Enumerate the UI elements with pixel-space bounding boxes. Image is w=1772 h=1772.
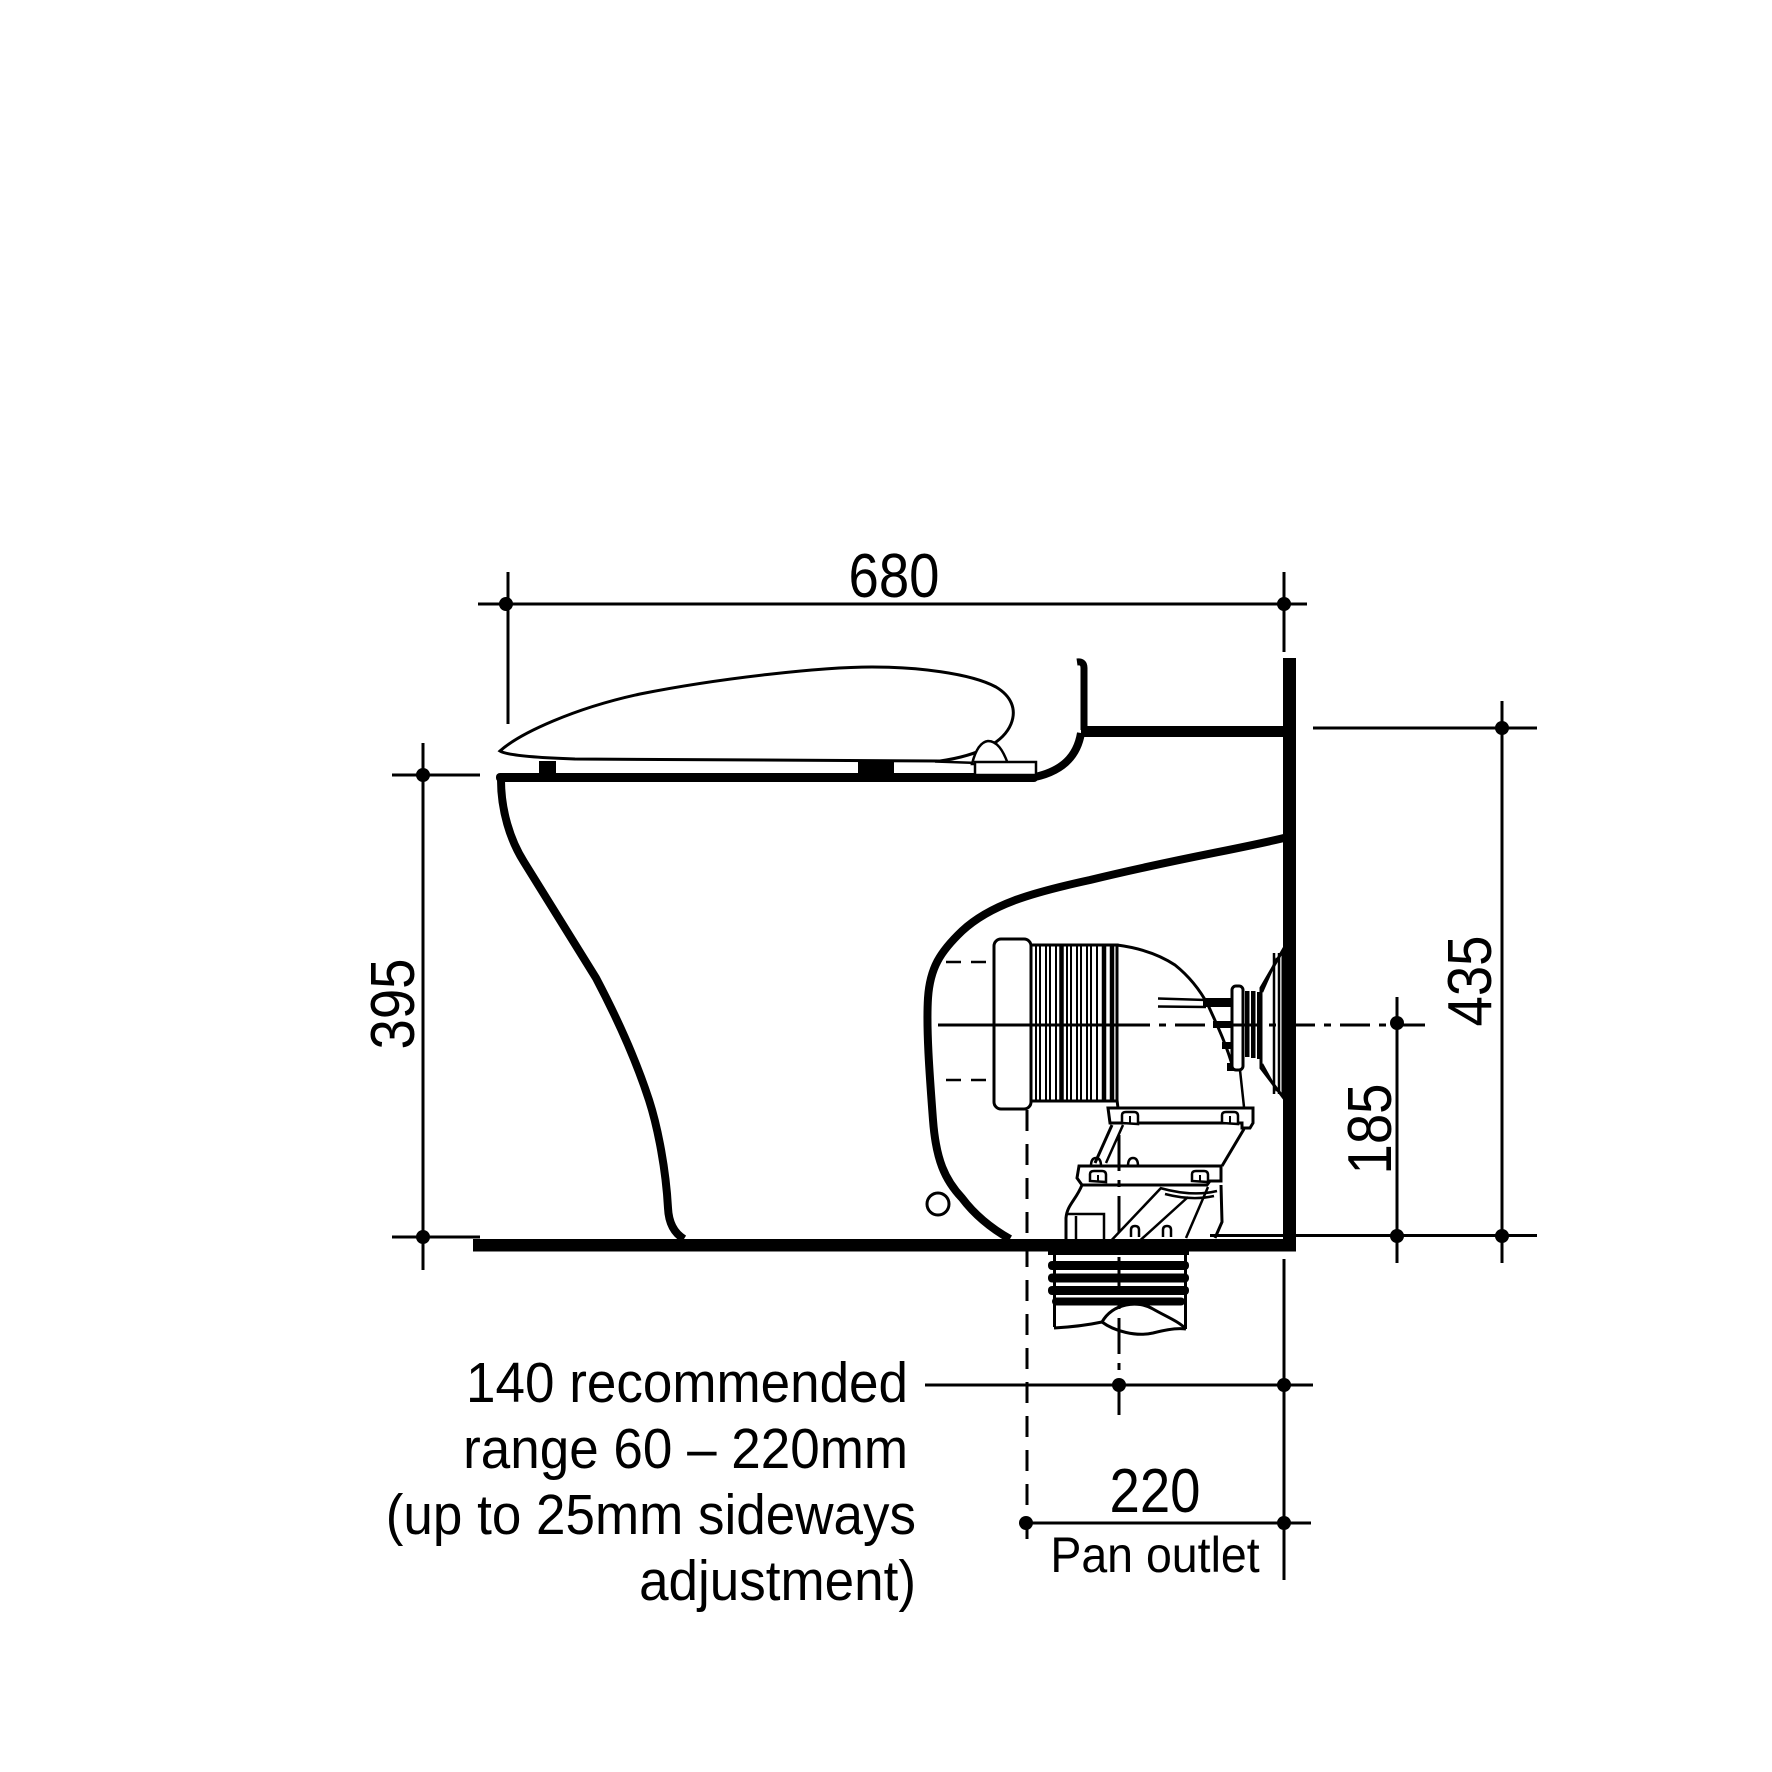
svg-text:395: 395: [359, 958, 428, 1049]
svg-text:(up to 25mm sideways: (up to 25mm sideways: [386, 1482, 916, 1546]
svg-text:Pan outlet: Pan outlet: [1050, 1527, 1260, 1583]
svg-text:adjustment): adjustment): [639, 1548, 916, 1612]
svg-text:680: 680: [848, 542, 939, 611]
svg-text:range 60 – 220mm: range 60 – 220mm: [463, 1416, 908, 1480]
svg-text:140 recommended: 140 recommended: [466, 1350, 908, 1414]
svg-text:185: 185: [1336, 1083, 1405, 1174]
svg-text:220: 220: [1109, 1457, 1200, 1526]
svg-text:435: 435: [1436, 935, 1505, 1026]
